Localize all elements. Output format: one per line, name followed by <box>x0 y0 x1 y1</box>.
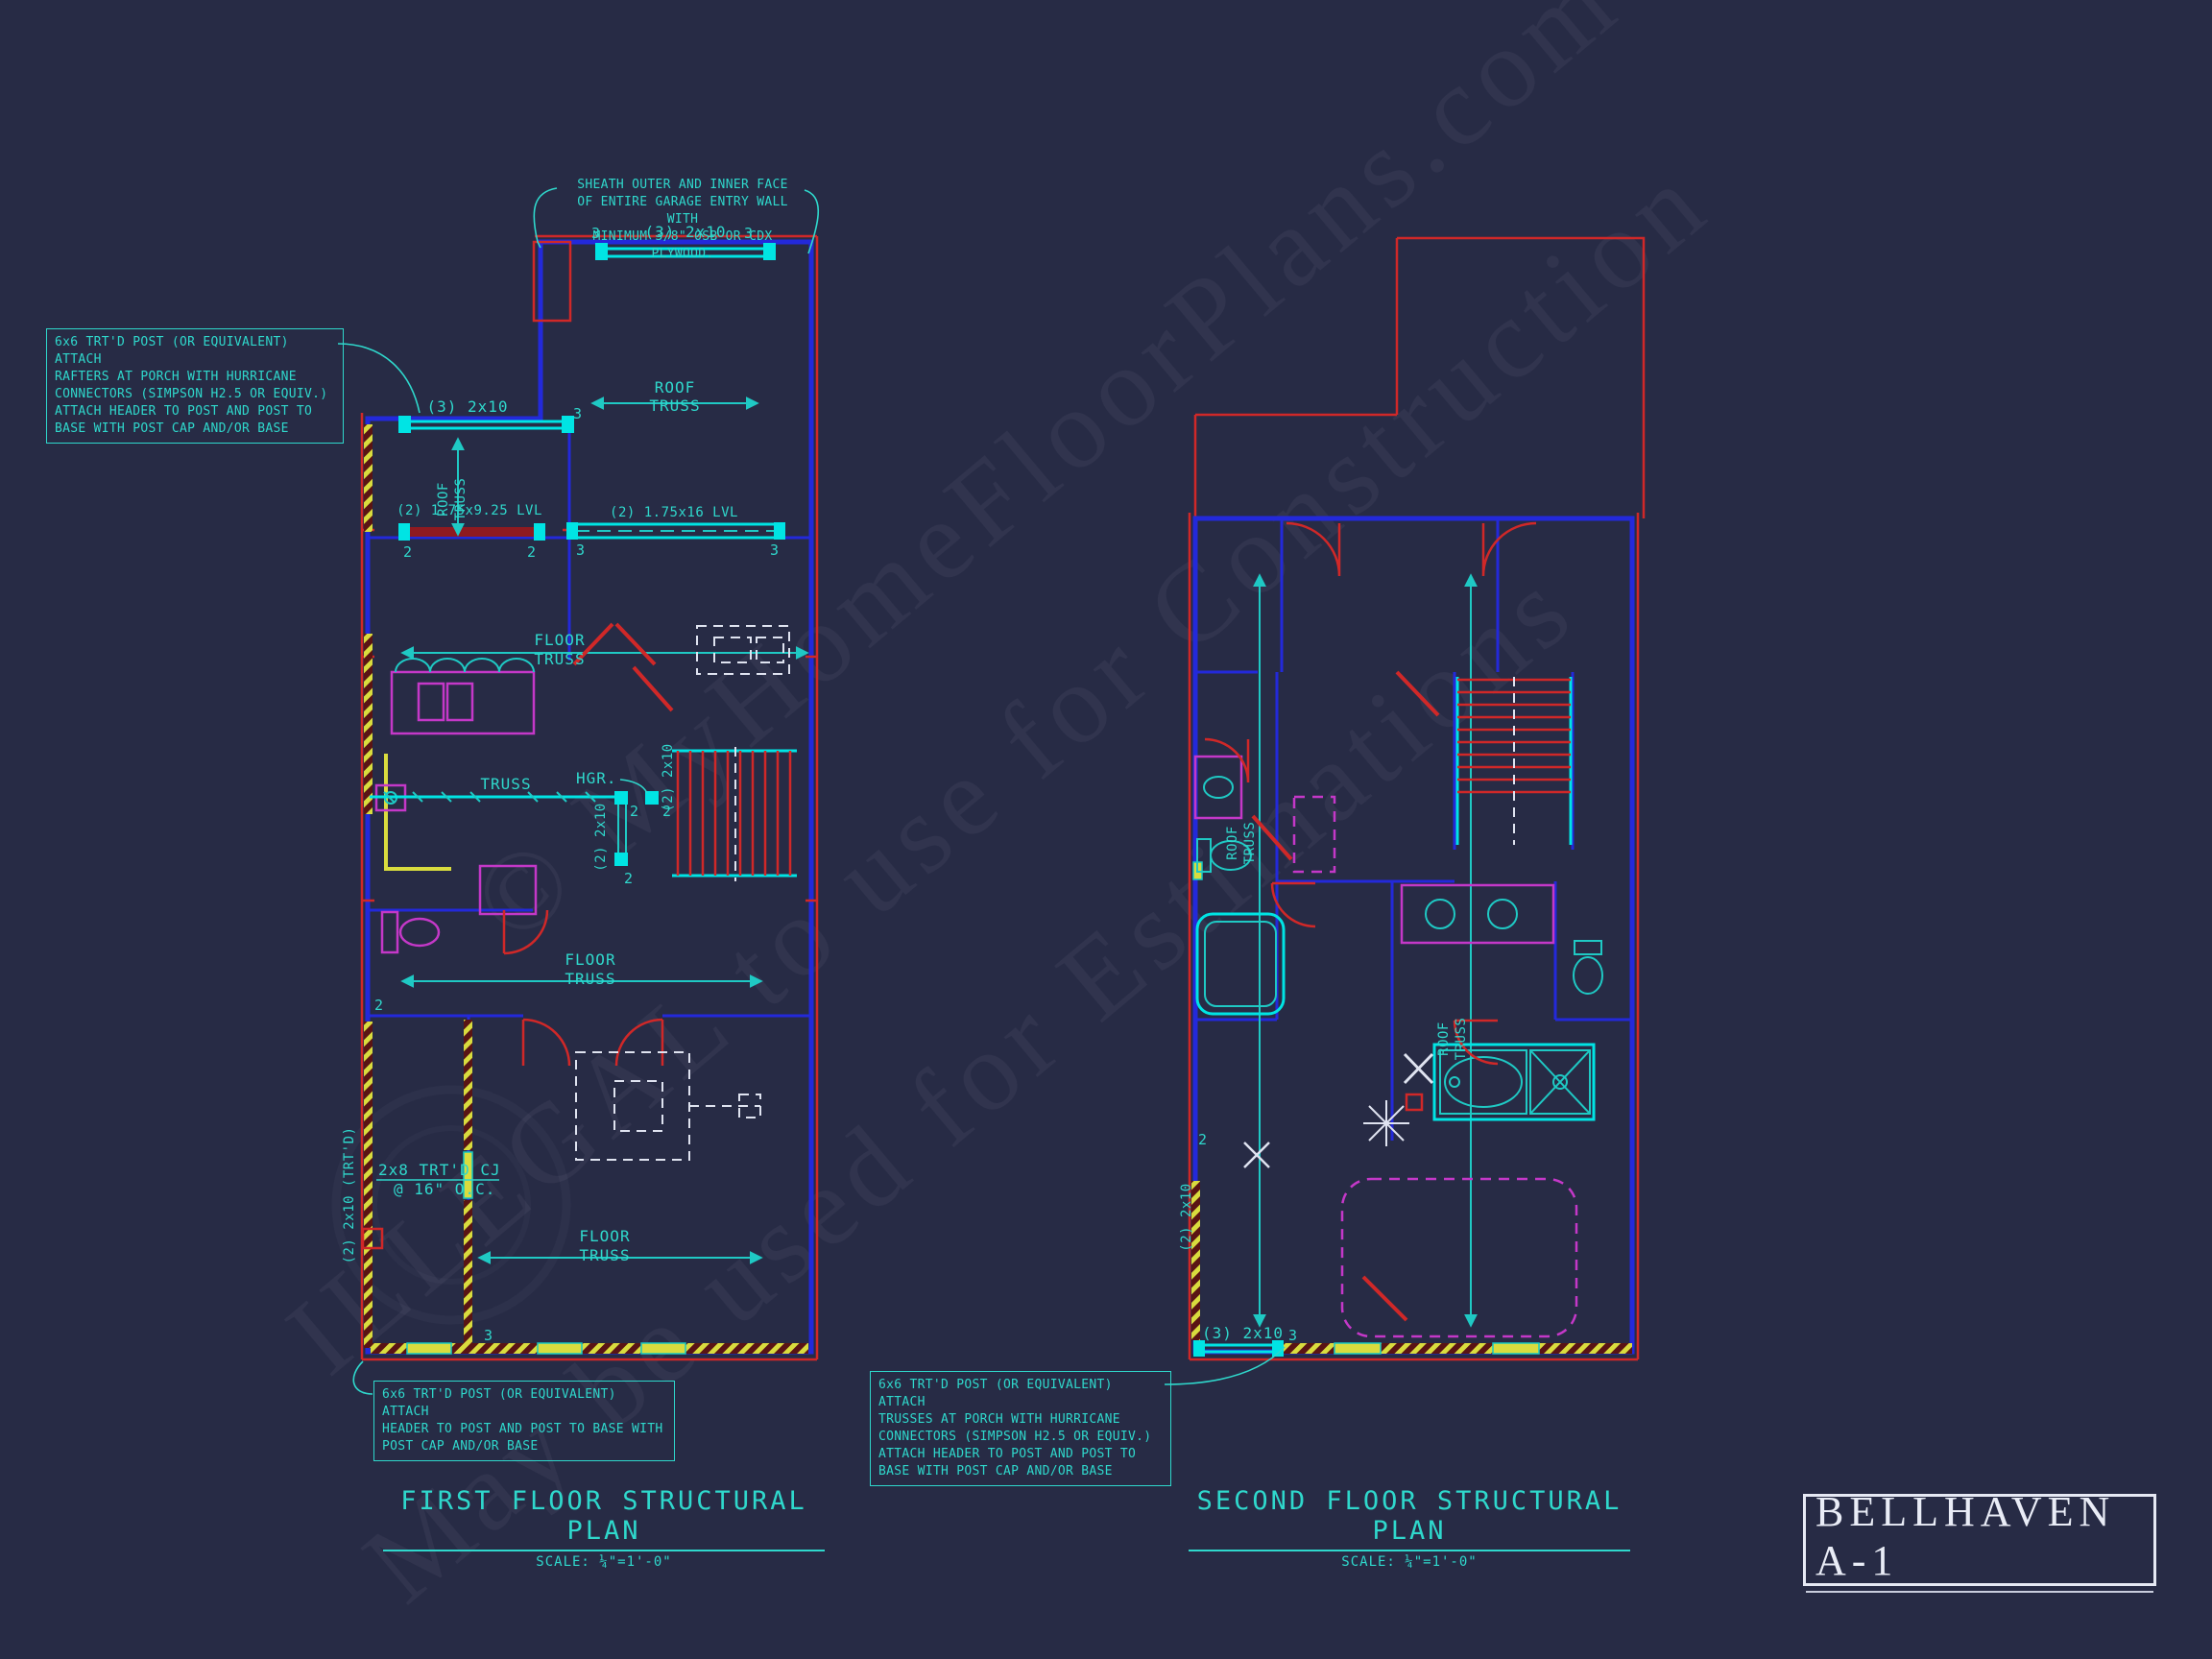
marker-2: 2 <box>624 870 633 887</box>
label-2-2x10-vert: (2) 2x10 <box>593 803 609 871</box>
bath-fixtures <box>382 912 439 952</box>
first-floor-title: FIRST FLOOR STRUCTURAL PLAN <box>383 1486 825 1551</box>
window <box>407 1343 451 1354</box>
note-line: RAFTERS AT PORCH WITH HURRICANE <box>55 369 335 386</box>
marker-2: 2 <box>403 543 412 561</box>
window <box>1334 1343 1381 1354</box>
door-swings <box>504 624 672 1066</box>
attic-symbols <box>1244 1054 1432 1167</box>
second-floor-title-block: SECOND FLOOR STRUCTURAL PLAN SCALE: ¼"=1… <box>1189 1486 1630 1570</box>
closet-dashed <box>1294 797 1334 872</box>
dashed-casework <box>576 626 789 1160</box>
hgr-leader <box>620 780 647 793</box>
label-3-2x10-porch2: (3) 2x10 <box>1202 1324 1284 1342</box>
note-line: POST CAP AND/OR BASE <box>382 1438 666 1455</box>
label-2-2x10-vert: (2) 2x10 <box>661 743 676 811</box>
note-line: 6x6 TRT'D POST (OR EQUIVALENT) ATTACH <box>382 1386 666 1421</box>
label-lvl-925: (2) 1.75x9.25 LVL <box>397 503 542 518</box>
bath2-fixtures <box>1402 885 1602 1119</box>
marker-2: 2 <box>527 543 536 561</box>
lvl-beam-16 <box>566 522 785 540</box>
marker-2: 2 <box>662 803 671 820</box>
marker-3: 3 <box>576 541 585 559</box>
marker-2: 2 <box>1198 1131 1207 1148</box>
label-truss-vert: TRUSS <box>1454 1018 1469 1061</box>
label-truss-vert: TRUSS <box>1242 822 1258 865</box>
second-floor-red-outline <box>1190 513 1638 1359</box>
label-cj-spacing: @ 16" O.C. <box>394 1180 495 1198</box>
post-header-note: 6x6 TRT'D POST (OR EQUIVALENT) ATTACH HE… <box>373 1381 675 1461</box>
label-roof-vert: ROOF <box>1436 1022 1452 1056</box>
first-floor-interior-walls <box>368 419 811 1352</box>
roof-outline <box>1195 238 1644 518</box>
label-roof: ROOF <box>655 378 696 397</box>
hatch-wall <box>464 1200 472 1348</box>
label-cj: 2x8 TRT'D CJ <box>378 1161 501 1179</box>
label-floor: FLOOR <box>534 631 585 649</box>
marker-3: 3 <box>484 1327 493 1344</box>
note-line: CONNECTORS (SIMPSON H2.5 OR EQUIV.) <box>878 1429 1163 1446</box>
marker-3: 3 <box>573 405 582 422</box>
first-floor-title-block: FIRST FLOOR STRUCTURAL PLAN SCALE: ¼"=1'… <box>383 1486 825 1570</box>
label-3-2x10-porch: (3) 2x10 <box>426 397 508 416</box>
sheathing-note-line: OF ENTIRE GARAGE ENTRY WALL WITH <box>563 194 803 228</box>
note-line: 6x6 TRT'D POST (OR EQUIVALENT) ATTACH <box>878 1377 1163 1411</box>
window <box>1493 1343 1539 1354</box>
note-line: BASE WITH POST CAP AND/OR BASE <box>878 1463 1163 1480</box>
hatch-wall <box>364 634 373 814</box>
note-line: TRUSSES AT PORCH WITH HURRICANE <box>878 1411 1163 1429</box>
note-line: 6x6 TRT'D POST (OR EQUIVALENT) ATTACH <box>55 334 335 369</box>
note-line: HEADER TO POST AND POST TO BASE WITH <box>382 1421 666 1438</box>
label-lvl-16: (2) 1.75x16 LVL <box>610 505 738 520</box>
first-floor-scale: SCALE: ¼"=1'-0" <box>383 1554 825 1570</box>
second-floor-interior-walls <box>1195 518 1632 1141</box>
label-2-2x10-trtd-vert: (2) 2x10 (TRT'D) <box>342 1127 357 1264</box>
second-floor-outer-wall <box>1195 518 1632 1352</box>
marker-2: 2 <box>630 803 638 820</box>
bath1-fixtures <box>1195 757 1284 1014</box>
marker-3: 3 <box>770 541 779 559</box>
sheathing-note-line: SHEATH OUTER AND INNER FACE <box>563 177 803 194</box>
note-line: ATTACH HEADER TO POST AND POST TO <box>878 1446 1163 1463</box>
stairs-2 <box>1457 677 1571 845</box>
window <box>538 1343 582 1354</box>
truss-beam <box>370 791 659 866</box>
sheathing-note: SHEATH OUTER AND INNER FACE OF ENTIRE GA… <box>563 177 803 263</box>
post-trusses-note: 6x6 TRT'D POST (OR EQUIVALENT) ATTACH TR… <box>870 1371 1171 1486</box>
wall-ticks <box>363 530 817 901</box>
label-floor: FLOOR <box>579 1227 630 1245</box>
hatch-wall <box>364 1022 373 1348</box>
label-roof-vert: ROOF <box>1225 826 1240 860</box>
label-truss: TRUSS <box>649 397 700 415</box>
note-line: BASE WITH POST CAP AND/OR BASE <box>55 421 335 438</box>
marker-3: 3 <box>1288 1327 1297 1344</box>
plan-name: BELLHAVEN A-1 <box>1806 1487 2153 1593</box>
label-truss: TRUSS <box>579 1246 630 1264</box>
bonus-room-dashed <box>1342 1179 1576 1336</box>
label-truss: TRUSS <box>565 970 615 988</box>
second-floor-title: SECOND FLOOR STRUCTURAL PLAN <box>1189 1486 1630 1551</box>
post-rafters-note: 6x6 TRT'D POST (OR EQUIVALENT) ATTACH RA… <box>46 328 344 444</box>
second-floor-scale: SCALE: ¼"=1'-0" <box>1189 1554 1630 1570</box>
window <box>641 1343 685 1354</box>
hatch-wall <box>464 1020 472 1150</box>
label-truss-beam: TRUSS <box>480 775 531 793</box>
marker-2: 2 <box>374 997 383 1014</box>
drawing-sheet: © MyHomeFloorPlans.com ILLEGAL to use fo… <box>0 0 2212 1659</box>
label-floor: FLOOR <box>565 950 615 969</box>
hatch-wall <box>364 424 373 532</box>
label-hgr: HGR. <box>576 769 617 787</box>
sheet-title-block: BELLHAVEN A-1 <box>1803 1494 2156 1586</box>
second-floor-plan: ROOF TRUSS ROOF TRUSS (2) 2x10 2 (3) 2x1… <box>1179 238 1644 1359</box>
sheathing-note-line: MINIMUM 3/8" OSB OR CDX PLYWOOD. <box>563 228 803 263</box>
stairs <box>672 747 797 881</box>
label-truss: TRUSS <box>534 650 585 668</box>
note-line: ATTACH HEADER TO POST AND POST TO <box>55 403 335 421</box>
label-2-2x10-vert: (2) 2x10 <box>1179 1183 1194 1251</box>
note-line: CONNECTORS (SIMPSON H2.5 OR EQUIV.) <box>55 386 335 403</box>
